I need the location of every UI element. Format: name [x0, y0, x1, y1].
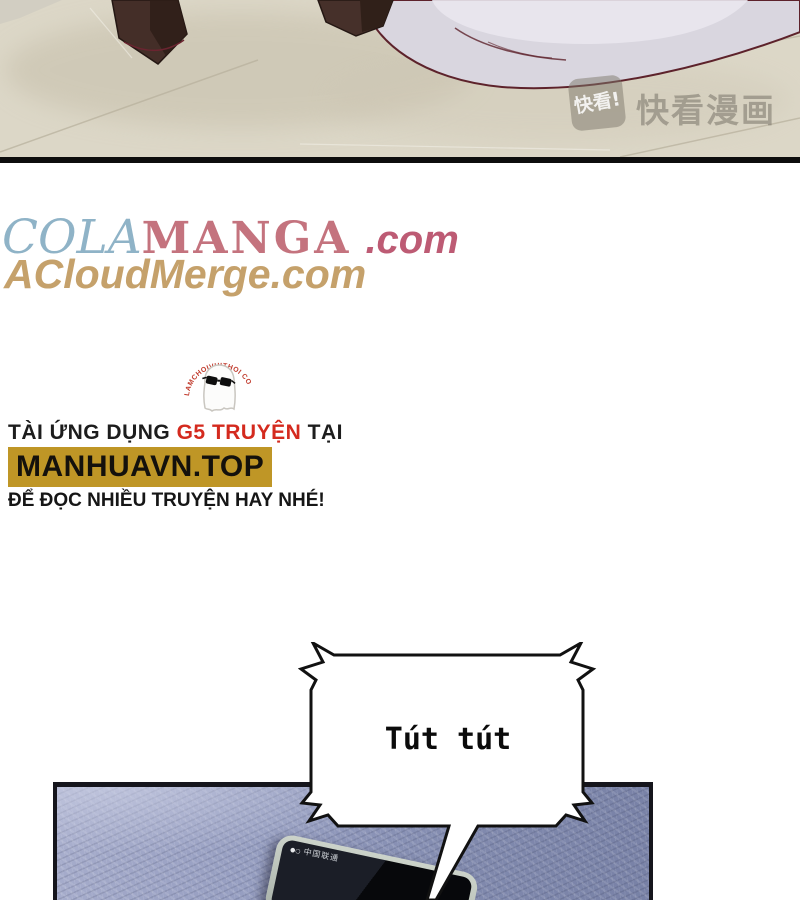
promo-line1-prefix: TÀI ỨNG DỤNG — [8, 421, 177, 444]
promo-site-banner: MANHUAVN.TOP — [8, 447, 272, 487]
ghost-logo-svg: LAMCHOIVUITHOI COMIC — [183, 352, 255, 418]
promo-line1-highlight: G5 TRUYỆN — [177, 421, 302, 444]
promo-line1: TÀI ỨNG DỤNG G5 TRUYỆN TẠI — [8, 421, 343, 445]
colamanga-dotcom: .com — [365, 218, 458, 262]
comic-reader-page: 快看! 快看漫画 COLAMANGA.com ACloudMerge.com L… — [0, 0, 800, 900]
speech-bubble-text: Tút tút — [298, 722, 598, 757]
ghost-body — [204, 365, 235, 411]
top-comic-panel: 快看! 快看漫画 — [0, 0, 800, 157]
kuaikan-logo-badge: 快看! — [567, 74, 626, 131]
kuaikan-badge-text: 快看! — [572, 90, 621, 117]
top-panel-art — [0, 0, 800, 157]
promo-line3: ĐỂ ĐỌC NHIỀU TRUYỆN HAY NHÉ! — [8, 490, 325, 512]
kuaikan-brand-text: 快看漫画 — [636, 84, 776, 132]
speech-bubble-shape — [301, 643, 593, 900]
panel-divider — [0, 157, 800, 163]
ghost-logo: LAMCHOIVUITHOI COMIC — [183, 352, 255, 418]
speech-bubble — [298, 642, 598, 900]
promo-line1-suffix: TẠI — [301, 421, 343, 444]
watermark-acloudmerge: ACloudMerge.com — [4, 251, 366, 298]
